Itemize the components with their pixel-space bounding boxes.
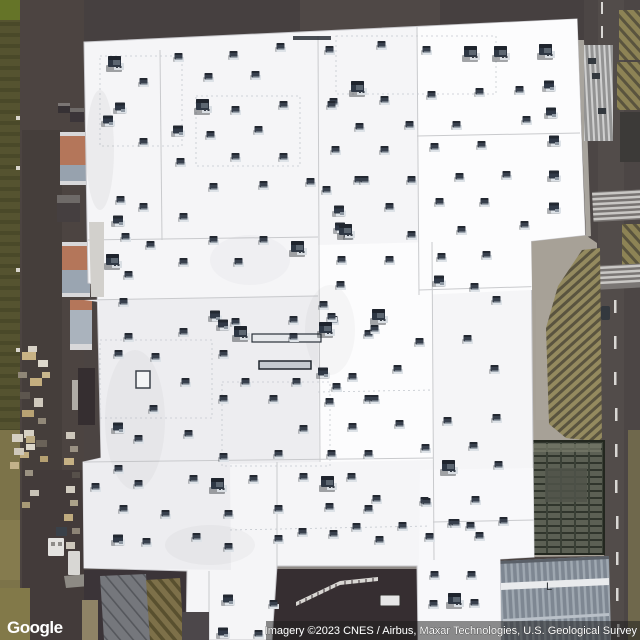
svg-text:Imagery ©2023 CNES / Airbus, M: Imagery ©2023 CNES / Airbus, Maxar Techn… bbox=[265, 625, 638, 637]
svg-text:Google: Google bbox=[7, 618, 63, 637]
svg-text:L: L bbox=[546, 581, 552, 593]
